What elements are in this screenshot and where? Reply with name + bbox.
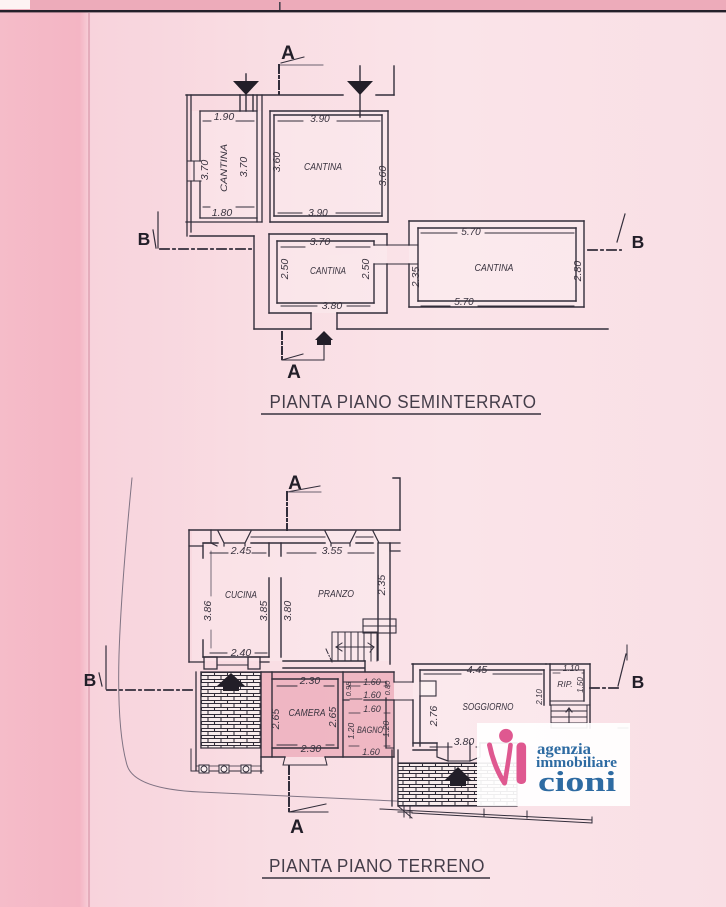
- svg-text:3.70: 3.70: [199, 160, 211, 181]
- svg-text:1.60: 1.60: [363, 677, 381, 687]
- svg-text:1.80: 1.80: [212, 207, 233, 219]
- svg-text:2.10: 2.10: [535, 689, 544, 706]
- svg-text:CANTINA: CANTINA: [304, 161, 342, 173]
- svg-text:A: A: [290, 817, 304, 838]
- svg-text:CAMERA: CAMERA: [289, 707, 326, 719]
- svg-text:1.60: 1.60: [363, 690, 381, 700]
- svg-text:2.45: 2.45: [230, 545, 252, 557]
- svg-text:CANTINA: CANTINA: [475, 263, 514, 274]
- svg-text:2.30: 2.30: [299, 675, 321, 687]
- svg-text:3.80: 3.80: [322, 300, 343, 312]
- svg-text:1.90: 1.90: [214, 111, 235, 123]
- svg-text:1.10: 1.10: [563, 663, 580, 673]
- svg-text:CANTINA: CANTINA: [310, 266, 346, 277]
- svg-text:0.98: 0.98: [344, 681, 353, 696]
- svg-text:A: A: [288, 473, 302, 494]
- svg-text:1.20: 1.20: [346, 722, 356, 739]
- svg-text:RIP.: RIP.: [557, 679, 572, 689]
- svg-text:CANTINA: CANTINA: [219, 144, 230, 192]
- svg-text:3.55: 3.55: [322, 545, 343, 557]
- svg-text:3.90: 3.90: [310, 114, 330, 125]
- svg-text:A: A: [287, 362, 301, 383]
- svg-text:3.80: 3.80: [282, 601, 294, 622]
- svg-text:PRANZO: PRANZO: [318, 588, 354, 600]
- svg-text:B: B: [632, 672, 645, 692]
- svg-text:3.86: 3.86: [202, 601, 214, 622]
- svg-text:2.65: 2.65: [270, 709, 282, 731]
- svg-text:cioni: cioni: [538, 766, 616, 798]
- svg-text:5.70: 5.70: [454, 297, 474, 308]
- svg-text:3.90: 3.90: [308, 208, 328, 219]
- svg-text:3.70: 3.70: [310, 236, 331, 248]
- svg-text:3.60: 3.60: [271, 152, 283, 173]
- svg-text:5.70: 5.70: [461, 227, 481, 238]
- svg-text:2.40: 2.40: [230, 647, 252, 659]
- svg-text:PIANTA PIANO TERRENO: PIANTA PIANO TERRENO: [269, 856, 485, 876]
- svg-text:2.35: 2.35: [376, 575, 388, 597]
- svg-text:1.60: 1.60: [363, 704, 381, 714]
- svg-text:3.60: 3.60: [377, 166, 389, 187]
- svg-text:B: B: [632, 232, 645, 252]
- svg-text:2.50: 2.50: [279, 259, 291, 281]
- svg-text:2.65: 2.65: [327, 707, 339, 729]
- svg-text:3.85: 3.85: [258, 601, 270, 622]
- svg-text:CUCINA: CUCINA: [225, 589, 257, 601]
- svg-text:4.45: 4.45: [467, 664, 488, 676]
- svg-text:3.80: 3.80: [454, 736, 475, 748]
- svg-text:B: B: [84, 670, 97, 690]
- svg-text:2.35: 2.35: [410, 267, 422, 289]
- svg-text:1.60: 1.60: [362, 747, 380, 757]
- svg-text:SOGGIORNO: SOGGIORNO: [463, 701, 514, 713]
- svg-text:1.20: 1.20: [381, 720, 391, 737]
- svg-text:0.80: 0.80: [383, 680, 392, 695]
- svg-text:2.80: 2.80: [572, 261, 584, 283]
- svg-text:1.50: 1.50: [576, 677, 585, 693]
- svg-text:2.50: 2.50: [360, 259, 372, 281]
- svg-text:BAGNO: BAGNO: [357, 725, 383, 735]
- svg-text:A: A: [281, 43, 295, 64]
- svg-text:2.76: 2.76: [428, 706, 440, 728]
- svg-text:3.70: 3.70: [238, 157, 250, 178]
- svg-text:2.30: 2.30: [300, 743, 322, 755]
- svg-text:B: B: [138, 229, 151, 249]
- svg-text:PIANTA PIANO SEMINTERRATO: PIANTA PIANO SEMINTERRATO: [270, 392, 537, 412]
